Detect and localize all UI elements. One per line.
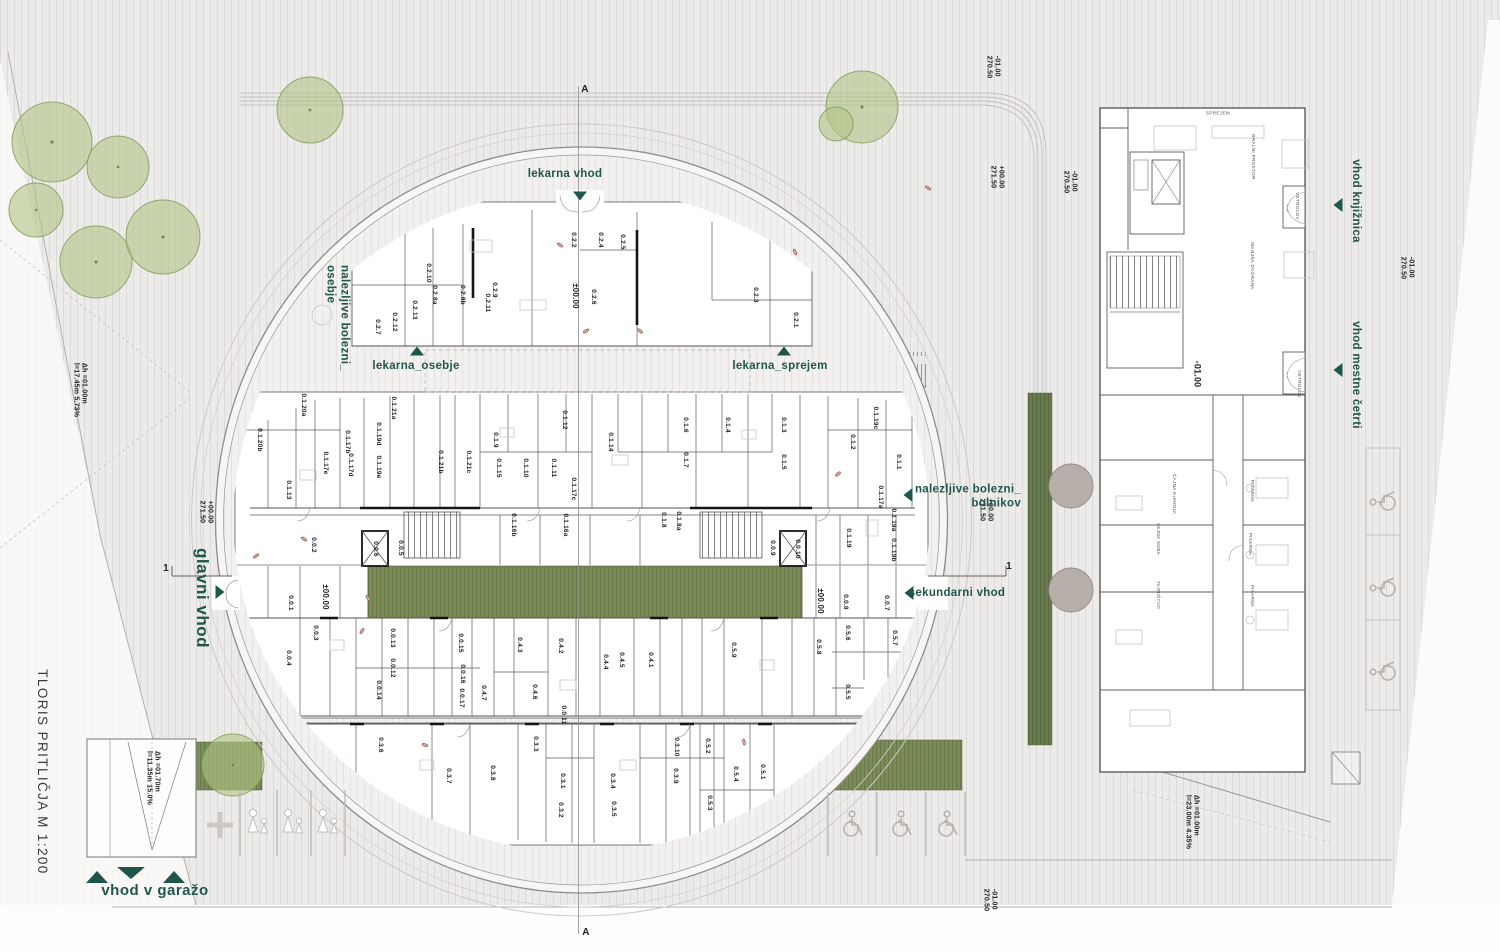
floor-plan-sheet: TLORIS PRITLIČJA M 1:200 0.2.10.2.20.2.3… [0,0,1500,952]
entrance-label: vhod v garažo [101,882,208,900]
room-label: 0.1.5 [779,454,787,469]
room-label: 0.1.9 [491,432,499,447]
entrance-arrow-down-icon [573,192,587,201]
room-label: 0.5.7 [890,630,898,645]
room-label: 0.0.6 [371,541,379,556]
room-name-label: PISARNA [1249,585,1255,608]
room-label: 0.2.6 [589,289,597,304]
room-label: 0.3.6 [376,737,384,752]
entrance-arrow-up-icon [86,871,108,883]
room-label: 0.1.17b [343,430,351,453]
room-label: 0.0.8 [841,594,849,609]
room-label: 0.5.1 [758,764,766,779]
room-label: 0.0.14 [374,680,382,699]
room-label: 0.1.19b [889,538,897,561]
room-label: 0.1.19a [889,508,897,531]
room-label: 0.4.7 [479,685,487,700]
room-name-label: VETROLOV [1296,370,1302,398]
section-marker: A [582,927,589,939]
room-label: 0.0.15 [456,633,464,652]
room-label: 0.1.21a [389,396,397,419]
room-label: 0.2.9 [490,282,498,297]
level-marker: -01.00 270.50 [981,889,998,912]
room-label: 0.5.5 [843,684,851,699]
room-label: 0.0.9 [768,540,776,555]
room-name-label: TAJNIŠTVO [1155,581,1161,609]
room-label: 0.1.19e [374,455,382,478]
level-marker: -01.00 270.50 [984,56,1001,79]
room-label: 0.0.2 [309,537,317,552]
entrance-label: lekarna_sprejem [732,359,827,373]
ramp-annotation: Δh =01.70m l=11.35m 15.0% [144,751,161,805]
room-label: 0.4.6 [530,684,538,699]
room-label: 0.1.16b [509,513,517,536]
room-label: 0.1.14 [606,432,614,451]
room-label: 0.0.7 [882,595,890,610]
level-marker: -01.00 270.50 [1061,171,1078,194]
room-label: 0.0.1 [286,595,294,610]
room-label: 0.1.19d [374,422,382,445]
room-label: 0.1.21b [436,450,444,473]
room-label: 0.5.4 [731,766,739,781]
room-label: 0.5.9 [729,642,737,657]
room-name-label: MANJŠA DVORANA [1249,242,1255,289]
room-name-label: BRALNI PROSTOR [1250,134,1256,179]
entrance-label: nalezljive bolezni_ osebje [323,265,352,371]
room-label: 0.1.20b [255,428,263,451]
entrance-label: lekarna_osebje [372,359,459,373]
level-marker: -01.00 [1192,361,1203,388]
room-label: 0.1.11 [549,459,557,478]
room-label: 0.2.2 [569,232,577,247]
room-label: 0.1.7 [681,452,689,467]
datum-marker: ±00.00 [815,588,825,614]
room-label: 0.2.13 [410,300,418,319]
room-label: 0.1.2 [848,434,856,449]
room-label: 0.2.8a [430,285,438,304]
room-name-label: PISARNA [1247,533,1253,556]
entrance-arrow-left-icon [905,586,914,600]
room-label: 0.1.21c [464,450,472,473]
room-label: 0.5.3 [705,795,713,810]
room-label: 0.0.5 [396,540,404,555]
room-label: 0.1.17e [321,451,329,474]
room-label: 0.0.10 [793,539,801,558]
entrance-arrow-down-icon [117,867,145,879]
entrance-label: lekarna vhod [528,167,603,181]
datum-marker: ±00.00 [320,584,330,610]
room-label: 0.1.17c [569,477,577,500]
entrance-label: vhod mestne četrti [1349,321,1363,429]
room-name-label: SEJNA SOBA [1155,523,1161,555]
room-label: 0.1.17a [876,485,884,508]
room-name-label: PISARNA [1249,480,1255,503]
room-label: 0.1.1 [894,454,902,469]
ramp-annotation: Δh =01.00m l=17.45m 5.73% [71,363,88,417]
ramp-annotation: Δh =01.00m l=23.00m 4.35% [1183,795,1200,849]
room-name-label: ČAJNA KUHINJA [1171,474,1177,514]
room-label: 0.2.11 [483,294,491,313]
room-label: 0.1.16a [561,513,569,536]
room-label: 0.0.16 [458,664,466,683]
entrance-arrow-up-icon [163,871,185,883]
entrance-arrow-left-icon [1334,198,1343,212]
room-name-label: VETROLOV [1294,192,1300,220]
room-label: 0.4.2 [556,638,564,653]
room-label: 0.1.3 [779,417,787,432]
room-label: 0.4.5 [617,652,625,667]
room-label: 0.3.9 [671,768,679,783]
room-label: 0.2.12 [390,312,398,331]
room-label: 0.2.7 [373,319,381,334]
room-label: 0.1.13 [284,480,292,499]
room-label: 0.3.2 [556,802,564,817]
room-label: 0.3.4 [608,773,616,788]
entrance-label: sekundarni vhod [909,586,1006,600]
entrance-arrow-up-icon [410,347,424,356]
room-label: 0.5.8 [814,639,822,654]
room-label: 0.1.19c [871,406,879,429]
room-label: 0.2.4 [596,232,604,247]
entrance-label: nalezljive bolezni_ bolnikov [915,483,1021,512]
room-label: 0.1.6 [681,417,689,432]
room-label: 0.5.6 [843,625,851,640]
room-label: 0.0.3 [311,625,319,640]
room-label: 0.0.17 [457,688,465,707]
section-marker: A [581,84,588,96]
room-label: 0.1.15 [494,458,502,477]
room-label: 0.0.13 [388,628,396,647]
datum-marker: ±00.00 [570,283,580,309]
room-label: 0.3.1 [558,773,566,788]
room-label: 0.1.4 [723,417,731,432]
entrance-label: vhod knjižnica [1349,159,1363,242]
room-label: 0.1.8a [674,511,682,530]
room-name-label: SPREJEM [1206,110,1230,116]
section-marker: 1 [1006,561,1012,573]
section-marker: 1 [163,563,169,575]
room-label: 0.3.3 [531,736,539,751]
entrance-arrow-left-icon [1334,363,1343,377]
entrance-arrow-right-icon [216,585,225,599]
room-label: 0.1.17d [346,453,354,476]
room-label: 0.5.2 [703,738,711,753]
room-label: 0.3.5 [609,801,617,816]
room-label: 0.3.8 [488,765,496,780]
room-label: 0.1.19 [844,528,852,547]
room-label: 0.4.3 [515,637,523,652]
room-label: 0.4.4 [601,654,609,669]
room-label: 0.4.1 [646,652,654,667]
room-label: 0.2.3 [751,287,759,302]
entrance-arrow-left-icon [904,488,913,502]
entrance-arrow-up-icon [777,347,791,356]
room-label: 0.3.10 [672,737,680,756]
room-label: 0.0.11 [559,706,567,725]
drawing-title: TLORIS PRITLIČJA M 1:200 [34,669,50,874]
room-label: 0.2.1 [791,312,799,327]
room-label: 0.2.5 [618,234,626,249]
room-label: 0.0.4 [284,650,292,665]
room-label: 0.1.12 [560,410,568,429]
entrance-label: glavni vhod [192,548,212,648]
room-label: 0.1.10 [521,458,529,477]
room-label: 0.3.7 [444,768,452,783]
room-label: 0.1.20a [299,393,307,416]
level-marker: +00.00 271.50 [988,166,1005,189]
level-marker: -01.00 270.50 [1398,257,1415,280]
room-label: 0.1.8 [659,512,667,527]
level-marker: +00.00 271.50 [197,501,214,524]
labels-layer: TLORIS PRITLIČJA M 1:200 0.2.10.2.20.2.3… [0,0,1500,952]
room-label: 0.0.12 [388,658,396,677]
room-label: 0.2.10 [424,263,432,282]
room-label: 0.2.8b [458,285,466,305]
